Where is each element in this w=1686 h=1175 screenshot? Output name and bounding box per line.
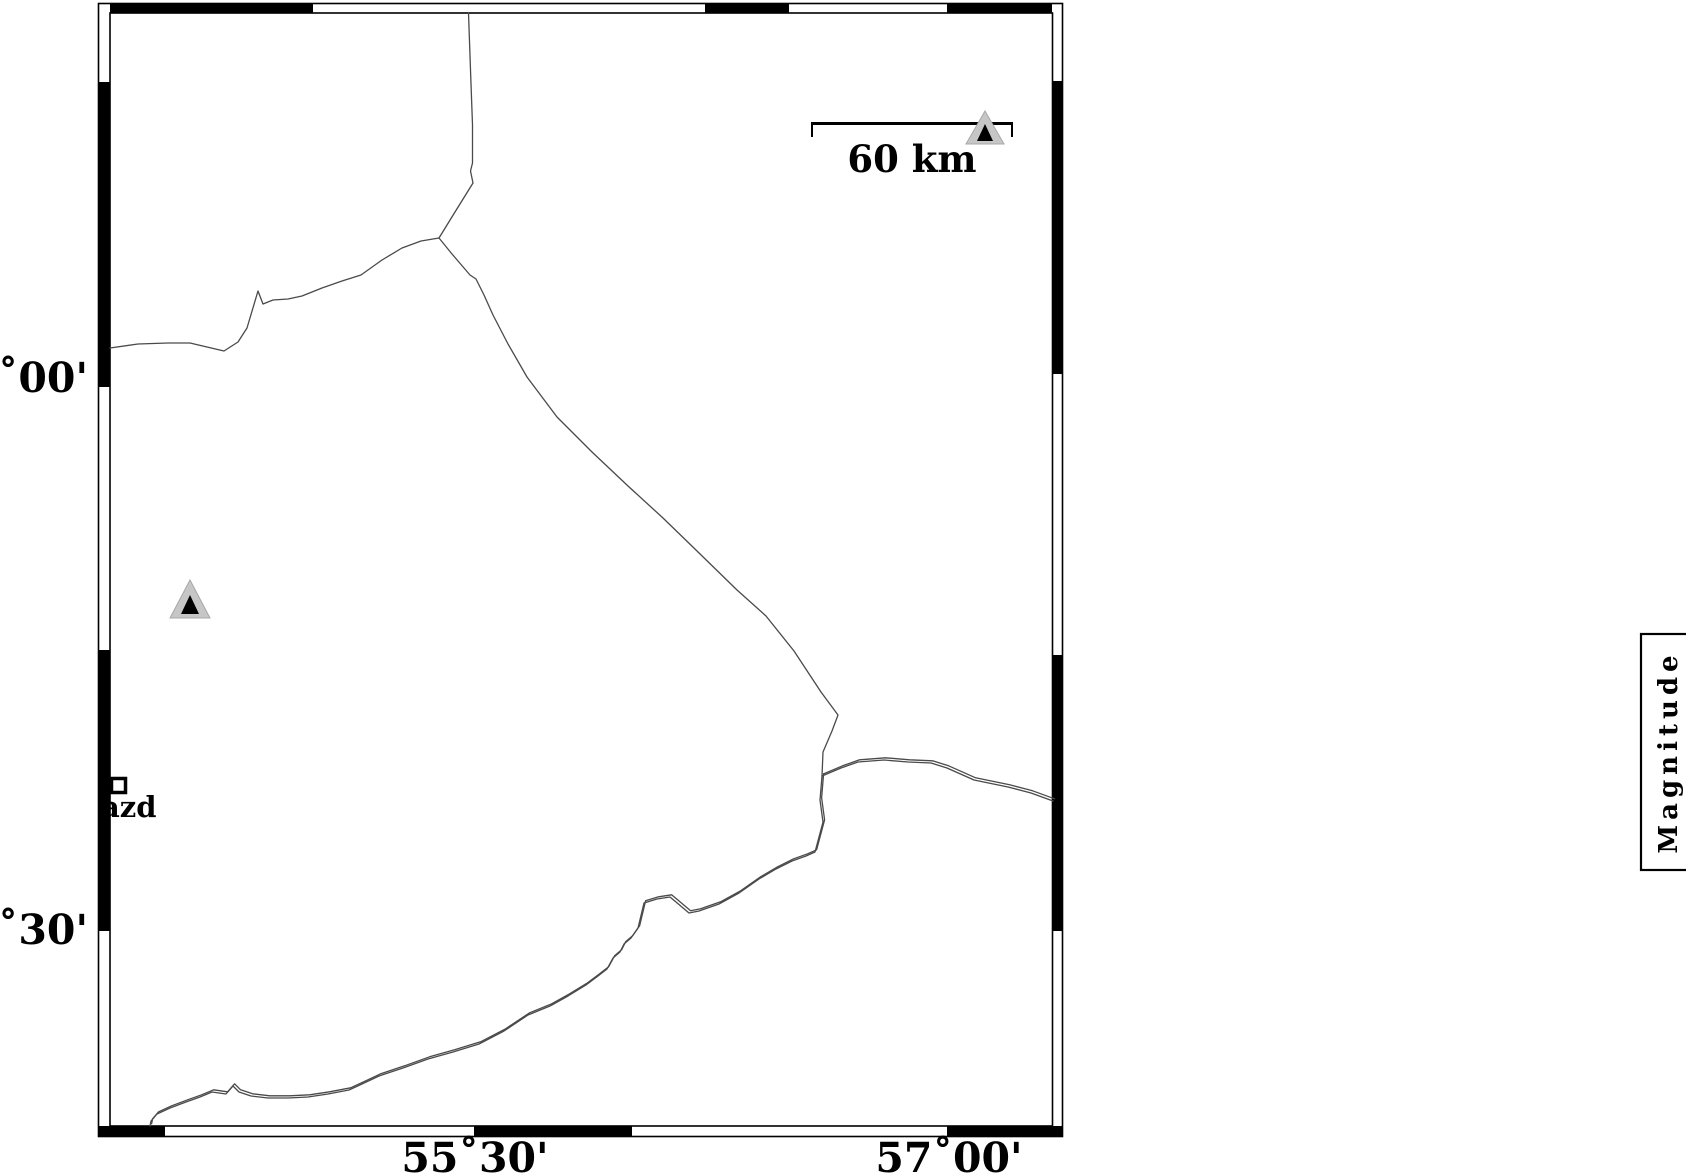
frame-segment: [1053, 81, 1063, 374]
scale-bar-label: 60 km: [847, 137, 976, 181]
lat-label-33-00: 33˚00': [0, 354, 88, 402]
lon-label-55-30: 55˚30': [401, 1134, 548, 1175]
boundary-line-east: [822, 760, 1053, 801]
map-canvas: 60 km azd 33˚00' 31˚30' 55˚30' 57˚00': [0, 0, 1686, 1175]
frame-segment: [99, 82, 111, 387]
frame-segment: [1053, 655, 1063, 931]
lon-label-57-00: 57˚00': [875, 1134, 1022, 1175]
frame-segment: [110, 4, 313, 14]
station-markers: [170, 111, 1004, 618]
boundary-line-east-echo: [824, 758, 1055, 799]
axis-labels: 33˚00' 31˚30' 55˚30' 57˚00': [0, 354, 1023, 1175]
magnitude-legend: Magnitude: [1641, 634, 1686, 870]
station-azd-label: azd: [101, 790, 157, 824]
boundary-line-south: [150, 776, 823, 1126]
boundary-line-north: [439, 13, 473, 238]
station-triangle-northeast: [966, 111, 1004, 144]
map-figure: 60 km azd 33˚00' 31˚30' 55˚30' 57˚00': [0, 0, 1686, 1175]
legend-title: Magnitude: [1654, 650, 1684, 853]
boundary-line-central-diagonal: [439, 238, 838, 776]
boundary-line-south-echo: [152, 774, 825, 1124]
frame-segment: [99, 1126, 166, 1137]
frame-segment: [705, 4, 789, 14]
frame-segment: [947, 4, 1052, 14]
station-triangle-west: [170, 580, 210, 618]
boundary-line-west: [110, 238, 439, 351]
lat-label-31-30: 31˚30': [0, 906, 88, 954]
